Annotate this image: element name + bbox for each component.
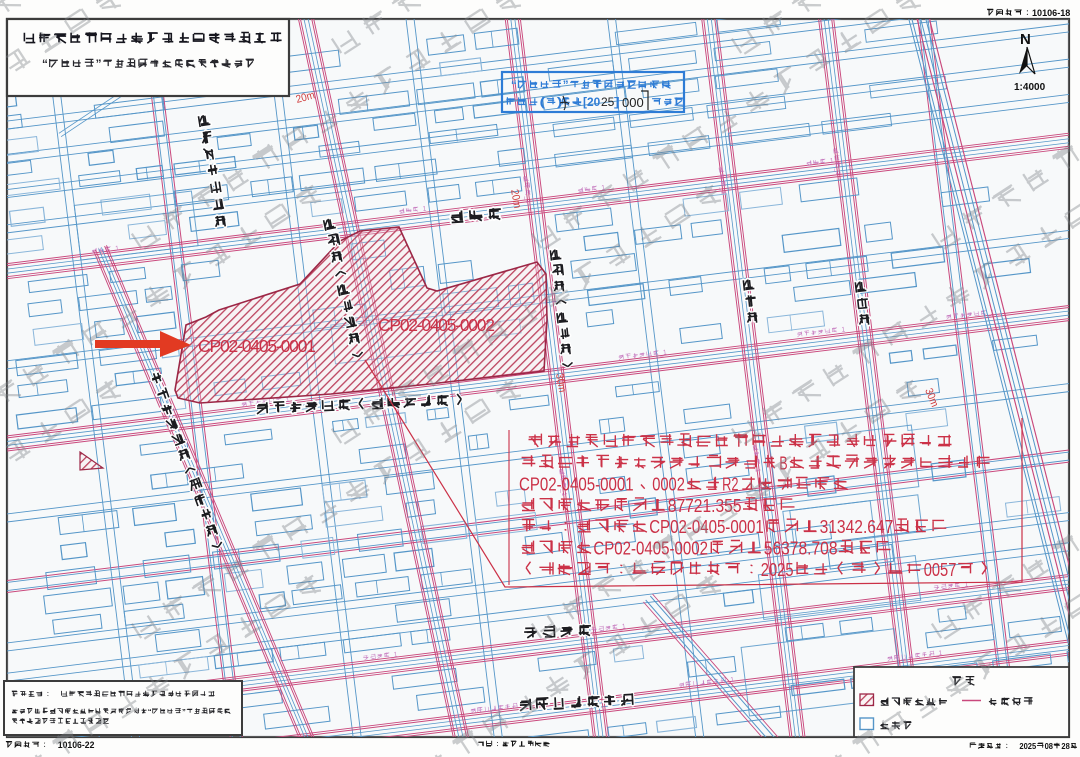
svg-text:08: 08 bbox=[1045, 741, 1054, 751]
svg-text:_1: _1 bbox=[658, 349, 667, 357]
svg-text:_1: _1 bbox=[617, 623, 626, 631]
svg-text:87721.355: 87721.355 bbox=[668, 495, 742, 516]
svg-text:”: ” bbox=[182, 707, 186, 716]
svg-text:CP02-0405-0002: CP02-0405-0002 bbox=[593, 538, 708, 559]
svg-text:(: ( bbox=[540, 97, 546, 109]
svg-text:]: ] bbox=[614, 97, 620, 109]
svg-text:”: ” bbox=[96, 57, 102, 71]
svg-text:“: “ bbox=[148, 707, 152, 716]
svg-text:56378.708: 56378.708 bbox=[764, 538, 838, 559]
svg-text:_1: _1 bbox=[418, 206, 427, 214]
svg-text:2025: 2025 bbox=[761, 559, 794, 580]
svg-text:_1: _1 bbox=[833, 167, 841, 176]
svg-text:“: “ bbox=[42, 57, 48, 71]
svg-text:_1: _1 bbox=[389, 651, 398, 659]
svg-text:“: “ bbox=[511, 80, 517, 92]
svg-text:_1: _1 bbox=[837, 326, 846, 334]
svg-text:_1: _1 bbox=[719, 186, 727, 195]
svg-text:000: 000 bbox=[622, 95, 644, 110]
svg-text:CP02-0405-0001: CP02-0405-0001 bbox=[198, 336, 316, 356]
svg-text:_1: _1 bbox=[523, 195, 531, 204]
svg-text:25: 25 bbox=[601, 95, 615, 109]
svg-text:_1: _1 bbox=[934, 650, 943, 658]
svg-text:_1: _1 bbox=[111, 245, 120, 253]
svg-text:”: ” bbox=[563, 80, 569, 92]
svg-text:CP02-0405-0001: CP02-0405-0001 bbox=[519, 474, 634, 495]
svg-text:[20: [20 bbox=[583, 97, 600, 109]
svg-text:N: N bbox=[1020, 31, 1031, 48]
svg-text:2025: 2025 bbox=[1019, 741, 1036, 751]
svg-text:31342.647: 31342.647 bbox=[820, 516, 894, 537]
svg-text:28: 28 bbox=[1061, 741, 1070, 751]
svg-text:0002: 0002 bbox=[652, 474, 685, 495]
svg-text:R2: R2 bbox=[722, 474, 738, 495]
svg-text:_1: _1 bbox=[825, 158, 834, 166]
svg-text:0057: 0057 bbox=[924, 559, 957, 580]
svg-text:1:4000: 1:4000 bbox=[1014, 82, 1046, 93]
svg-text:CP02-0405-0002: CP02-0405-0002 bbox=[378, 315, 495, 335]
svg-text:10106-18: 10106-18 bbox=[1032, 8, 1070, 18]
